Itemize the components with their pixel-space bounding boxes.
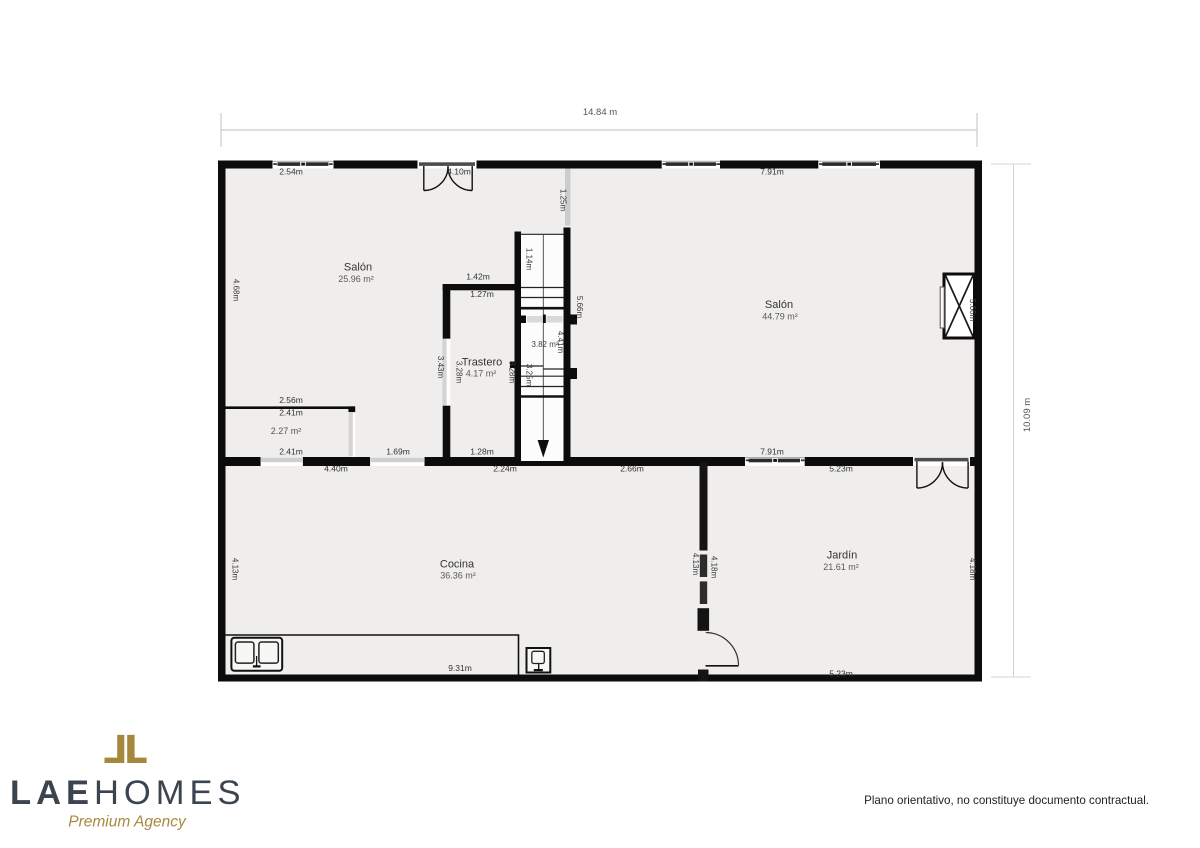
svg-text:7.91m: 7.91m — [760, 167, 784, 177]
svg-text:2.41m: 2.41m — [279, 408, 303, 418]
svg-text:9.31m: 9.31m — [448, 663, 472, 673]
svg-text:3.28m: 3.28m — [508, 361, 517, 384]
svg-text:1.69m: 1.69m — [386, 447, 410, 457]
svg-text:4.17 m²: 4.17 m² — [466, 369, 497, 379]
svg-text:3.25m: 3.25m — [525, 364, 534, 387]
svg-text:5.66m: 5.66m — [575, 296, 584, 319]
svg-text:2.54m: 2.54m — [279, 167, 303, 177]
svg-text:1.42m: 1.42m — [466, 272, 490, 282]
svg-text:1.28m: 1.28m — [470, 447, 494, 457]
svg-text:2.66m: 2.66m — [620, 464, 644, 474]
svg-text:1.27m: 1.27m — [470, 289, 494, 299]
svg-text:Salón: Salón — [765, 299, 793, 311]
svg-text:3.82 m²: 3.82 m² — [531, 340, 558, 349]
svg-text:2.56m: 2.56m — [279, 395, 303, 405]
svg-text:Premium Agency: Premium Agency — [68, 814, 187, 831]
svg-text:7.91m: 7.91m — [760, 447, 784, 457]
svg-text:1.25m: 1.25m — [559, 189, 568, 212]
svg-text:2.27 m²: 2.27 m² — [271, 426, 302, 436]
svg-text:LAEHOMES: LAEHOMES — [10, 774, 246, 812]
svg-text:Cocina: Cocina — [440, 559, 475, 571]
svg-text:44.79 m²: 44.79 m² — [762, 312, 798, 322]
svg-text:25.96 m²: 25.96 m² — [338, 274, 374, 284]
svg-text:1.14m: 1.14m — [525, 248, 534, 271]
svg-text:2.41m: 2.41m — [279, 447, 303, 457]
svg-text:4.13m: 4.13m — [231, 558, 240, 581]
svg-text:14.84 m: 14.84 m — [583, 107, 617, 118]
svg-text:5.23m: 5.23m — [829, 464, 853, 474]
svg-text:5.23m: 5.23m — [829, 669, 853, 679]
svg-text:Jardín: Jardín — [827, 550, 858, 562]
svg-text:4.68m: 4.68m — [232, 279, 241, 302]
svg-text:3.28m: 3.28m — [455, 361, 464, 384]
svg-text:36.36 m²: 36.36 m² — [440, 571, 476, 581]
svg-text:4.10m: 4.10m — [447, 167, 471, 177]
svg-text:Trastero: Trastero — [462, 357, 503, 369]
svg-text:4.40m: 4.40m — [324, 464, 348, 474]
svg-text:Plano orientativo, no constitu: Plano orientativo, no constituye documen… — [864, 794, 1149, 807]
svg-text:4.18m: 4.18m — [968, 558, 977, 581]
svg-text:21.61 m²: 21.61 m² — [823, 562, 859, 572]
svg-text:Salón: Salón — [344, 262, 372, 274]
svg-text:3.43m: 3.43m — [436, 356, 445, 379]
svg-text:5.66m: 5.66m — [968, 299, 977, 322]
svg-text:4.18m: 4.18m — [710, 556, 719, 579]
svg-text:4.41m: 4.41m — [556, 331, 565, 354]
svg-text:10.09 m: 10.09 m — [1022, 398, 1033, 432]
svg-text:4.13m: 4.13m — [691, 553, 700, 576]
svg-text:2.24m: 2.24m — [493, 464, 517, 474]
